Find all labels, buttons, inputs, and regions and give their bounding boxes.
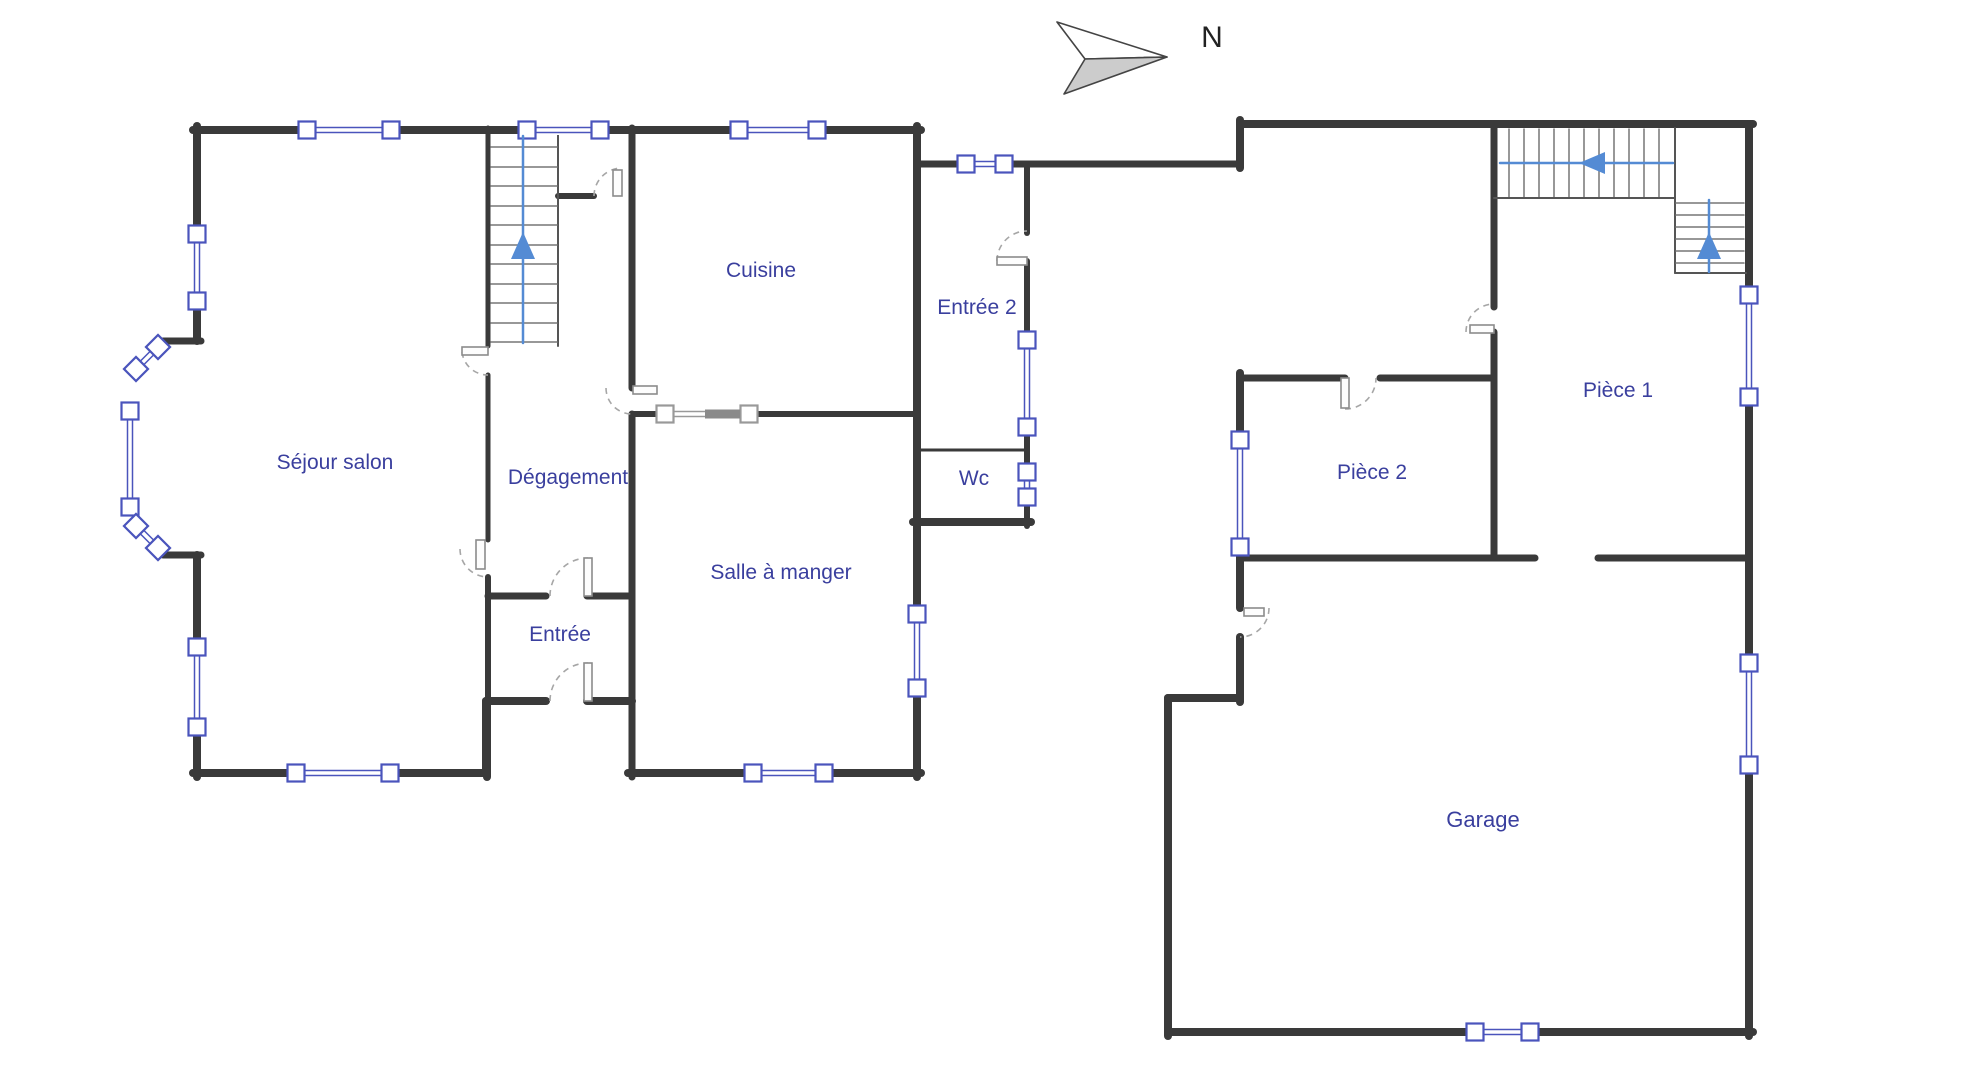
bay-slider-bar [705, 410, 740, 419]
window-handle [1467, 1024, 1484, 1041]
window-handle-square [1232, 432, 1249, 449]
door-leaf [1244, 608, 1264, 616]
window-handle [592, 122, 609, 139]
window-handle-square [1019, 332, 1036, 349]
window-handle-square [122, 403, 139, 420]
window-handle-square [383, 122, 400, 139]
window-handle [1019, 419, 1036, 436]
room-label-piece-1: Pièce 1 [1583, 379, 1653, 402]
window-handle-square [1522, 1024, 1539, 1041]
window-handle-square [189, 639, 206, 656]
room-label-entree-2: Entrée 2 [937, 296, 1016, 319]
window-handle-square [1741, 287, 1758, 304]
window-handle [996, 156, 1013, 173]
window-handle-square [288, 765, 305, 782]
window-handle-square [1019, 489, 1036, 506]
window-handle-square [382, 765, 399, 782]
room-label-entree: Entrée [529, 623, 591, 646]
door-leaf [997, 257, 1027, 265]
window-handle-square [299, 122, 316, 139]
window-handle-square [816, 765, 833, 782]
window-handle [519, 122, 536, 139]
room-label-degagement: Dégagement [508, 466, 628, 489]
north-label: N [1201, 21, 1223, 54]
window-handle [383, 122, 400, 139]
door-leaf [1470, 325, 1494, 333]
window-handle-square [189, 226, 206, 243]
stair-direction-arrowhead [1579, 152, 1605, 174]
door-leaf [462, 347, 488, 355]
door-leaf [633, 386, 657, 394]
window-handle [809, 122, 826, 139]
window-handle [189, 226, 206, 243]
window-handle-square [809, 122, 826, 139]
door-swing-arc [606, 388, 632, 414]
window-handle-square [189, 293, 206, 310]
window-handle [122, 403, 139, 420]
stair-direction-arrowhead [1697, 232, 1721, 259]
window-handle-square [519, 122, 536, 139]
window-handle [1232, 432, 1249, 449]
room-label-sejour-salon: Séjour salon [277, 451, 394, 474]
room-label-piece-2: Pièce 2 [1337, 461, 1407, 484]
window-handle [745, 765, 762, 782]
window-handle [189, 293, 206, 310]
window-handle-square [741, 406, 758, 423]
window-handle-square [1467, 1024, 1484, 1041]
window-handle [731, 122, 748, 139]
window-handle [288, 765, 305, 782]
window-handle-square [1232, 539, 1249, 556]
window-handle-square [1741, 757, 1758, 774]
window-handle-square [592, 122, 609, 139]
window-handle [958, 156, 975, 173]
north-arrow-icon [1057, 22, 1167, 59]
room-label-cuisine: Cuisine [726, 259, 796, 282]
window-handle-square [1741, 655, 1758, 672]
window-handle [741, 406, 758, 423]
door-leaf [584, 558, 592, 596]
door-leaf [584, 663, 592, 701]
room-label-garage: Garage [1446, 807, 1519, 832]
window-handle-square [1019, 464, 1036, 481]
window-handle [1741, 655, 1758, 672]
window-handle [1019, 332, 1036, 349]
window-handle [1522, 1024, 1539, 1041]
door-leaf [613, 170, 622, 196]
window-handle [1741, 287, 1758, 304]
window-handle-square [1741, 389, 1758, 406]
north-arrow-icon [1064, 57, 1167, 94]
window-handle-square [909, 606, 926, 623]
window-handle [1741, 757, 1758, 774]
door-swing-arc [550, 558, 588, 596]
floor-plan-page: NSéjour salonDégagementCuisineEntréeSall… [0, 0, 1980, 1080]
window-handle-square [996, 156, 1013, 173]
window-handle [382, 765, 399, 782]
window-handle-square [731, 122, 748, 139]
window-handle [816, 765, 833, 782]
window-handle [909, 606, 926, 623]
window-handle-square [657, 406, 674, 423]
door-leaf [476, 540, 485, 569]
door-swing-arc [550, 663, 588, 701]
window-handle-square [958, 156, 975, 173]
window-handle [1019, 489, 1036, 506]
window-handle [1741, 389, 1758, 406]
room-label-salle-a-manger: Salle à manger [710, 561, 851, 584]
window-handle [1019, 464, 1036, 481]
window-handle-square [1019, 419, 1036, 436]
window-handle [299, 122, 316, 139]
window-handle-square [745, 765, 762, 782]
door-leaf [1341, 378, 1349, 408]
window-handle [189, 639, 206, 656]
window-handle-square [189, 719, 206, 736]
window-handle [657, 406, 674, 423]
window-handle-square [909, 680, 926, 697]
floor-plan-canvas: NSéjour salonDégagementCuisineEntréeSall… [0, 0, 1980, 1080]
window-handle [909, 680, 926, 697]
window-handle [189, 719, 206, 736]
room-label-wc: Wc [959, 467, 989, 490]
window-handle [1232, 539, 1249, 556]
